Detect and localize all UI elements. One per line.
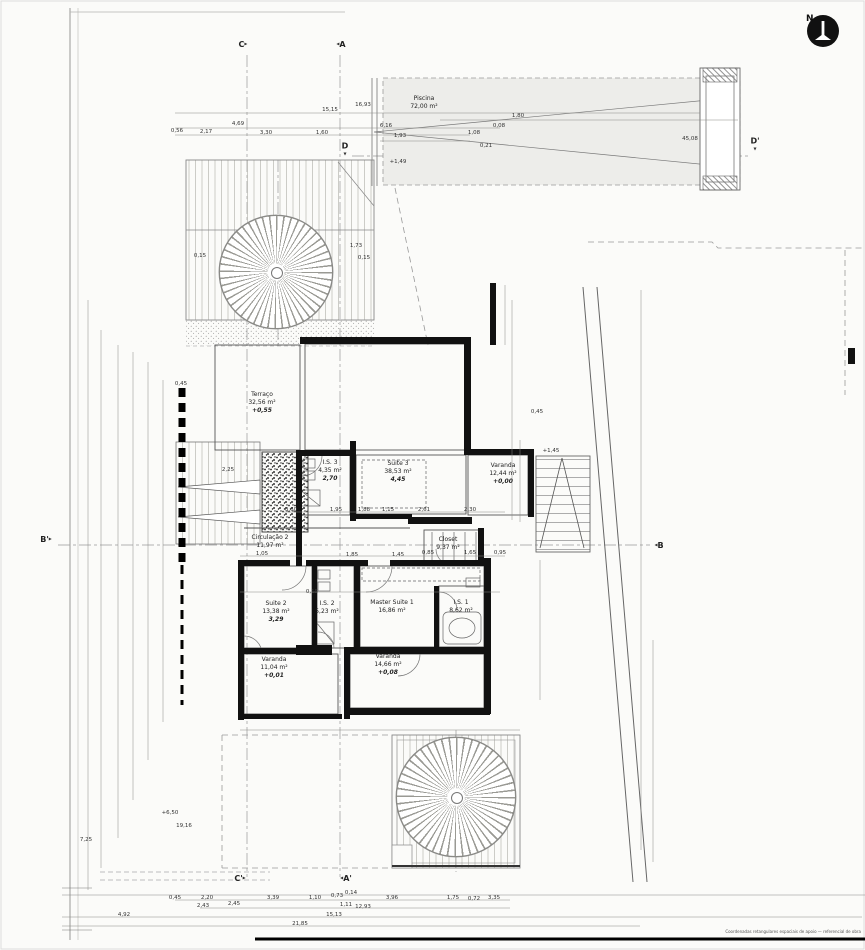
dimension-label: 0,73 bbox=[331, 893, 343, 899]
dimension-label: 0,45 bbox=[175, 381, 187, 387]
dimension-label: 1,85 bbox=[346, 552, 358, 558]
dimension-label: 2,25 bbox=[222, 467, 234, 473]
room-label: Varanda14,66 m²+0,08 bbox=[374, 653, 401, 676]
dimension-label: 1,88 bbox=[358, 507, 370, 513]
plan-labels: Piscina72,00 m²Terraço32,56 m²+0,55Suite… bbox=[0, 0, 865, 950]
section-marker-b-prime: B'▸ bbox=[40, 536, 52, 544]
dimension-label: 1,45 bbox=[392, 552, 404, 558]
room-label: Master Suite 116,86 m² bbox=[370, 599, 413, 615]
room-area: 32,56 m² bbox=[248, 399, 275, 407]
dimension-label: 15,15 bbox=[322, 107, 338, 113]
section-marker-triangle-icon: ▾ bbox=[750, 147, 759, 153]
floor-plan-canvas: Piscina72,00 m²Terraço32,56 m²+0,55Suite… bbox=[0, 0, 865, 950]
room-name: I.S. 1 bbox=[449, 599, 473, 607]
room-level: +0,00 bbox=[489, 478, 516, 486]
room-label: I.S. 18,62 m² bbox=[449, 599, 473, 615]
room-name: Suite 2 bbox=[262, 600, 289, 608]
dimension-label: 3,96 bbox=[386, 895, 398, 901]
room-level: +0,08 bbox=[374, 669, 401, 677]
section-marker-triangle-icon: ▸ bbox=[49, 536, 52, 543]
section-marker-a: ◂A bbox=[336, 41, 345, 49]
room-label: Closet9,37 m² bbox=[436, 536, 460, 552]
dimension-label: 2,17 bbox=[200, 129, 212, 135]
dimension-label: 1,60 bbox=[316, 130, 328, 136]
dimension-label: 0,14 bbox=[345, 890, 357, 896]
dimension-label: 0,45 bbox=[531, 409, 543, 415]
room-label: I.S. 25,23 m² bbox=[315, 600, 339, 616]
dimension-label: 0,60 bbox=[285, 507, 297, 513]
room-area: 16,86 m² bbox=[370, 607, 413, 615]
section-marker-label: D' bbox=[750, 137, 759, 146]
room-area: 4,35 m² bbox=[318, 467, 342, 475]
north-arrow: N bbox=[806, 14, 814, 25]
dimension-label: 16,93 bbox=[355, 102, 371, 108]
dimension-label: 1,95 bbox=[330, 507, 342, 513]
room-area: 5,23 m² bbox=[315, 608, 339, 616]
room-name: Master Suite 1 bbox=[370, 599, 413, 607]
dimension-label: 1,93 bbox=[394, 133, 406, 139]
dimension-label: 2,43 bbox=[197, 903, 209, 909]
room-label: Piscina72,00 m² bbox=[410, 95, 437, 111]
dimension-label: 0,85 bbox=[422, 550, 434, 556]
dimension-label: 19,16 bbox=[176, 823, 192, 829]
room-area: 38,53 m² bbox=[384, 468, 411, 476]
dimension-label: 0,15 bbox=[306, 589, 318, 595]
dimension-label: 0,56 bbox=[171, 128, 183, 134]
dimension-label: 0,15 bbox=[358, 255, 370, 261]
dimension-label: 1,73 bbox=[350, 243, 362, 249]
room-area: 14,66 m² bbox=[374, 661, 401, 669]
room-area: 8,62 m² bbox=[449, 607, 473, 615]
north-badge-icon bbox=[806, 14, 840, 48]
dimension-label: 0,95 bbox=[494, 550, 506, 556]
section-marker-label: B bbox=[657, 541, 663, 550]
room-level: +0,55 bbox=[248, 407, 275, 415]
room-name: I.S. 3 bbox=[318, 459, 342, 467]
dimension-label: 1,10 bbox=[309, 895, 321, 901]
room-label: Varanda11,04 m²+0,01 bbox=[260, 656, 287, 679]
dimension-label: 0,08 bbox=[493, 123, 505, 129]
dimension-label: 21,85 bbox=[292, 921, 308, 927]
room-name: Varanda bbox=[374, 653, 401, 661]
dimension-label: 2,45 bbox=[228, 901, 240, 907]
dimension-label: 45,08 bbox=[682, 136, 698, 142]
room-name: I.S. 2 bbox=[315, 600, 339, 608]
section-marker-d: D▾ bbox=[342, 143, 349, 158]
dimension-label: 0,15 bbox=[194, 253, 206, 259]
section-marker-a-prime: ◂A' bbox=[340, 875, 352, 883]
room-label: Suite 338,53 m²4,45 bbox=[384, 460, 411, 483]
room-area: 12,44 m² bbox=[489, 470, 516, 478]
dimension-label: 3,30 bbox=[260, 130, 272, 136]
room-name: Circulação 2 bbox=[251, 534, 288, 542]
room-level: 3,29 bbox=[262, 616, 289, 624]
dimension-label: 4,92 bbox=[118, 912, 130, 918]
dimension-label: 4,69 bbox=[232, 121, 244, 127]
section-marker-c: C▸ bbox=[239, 41, 248, 49]
dimension-label: 3,35 bbox=[488, 895, 500, 901]
section-marker-triangle-icon: ▾ bbox=[342, 152, 349, 158]
section-marker-c-prime: C'▸ bbox=[234, 875, 245, 883]
dimension-label: 1,75 bbox=[447, 895, 459, 901]
dimension-label: +6,50 bbox=[162, 810, 179, 816]
room-name: Closet bbox=[436, 536, 460, 544]
dimension-label: 7,25 bbox=[80, 837, 92, 843]
dimension-label: +1,49 bbox=[390, 159, 407, 165]
room-level: +0,01 bbox=[260, 672, 287, 680]
section-marker-d-prime: D'▾ bbox=[750, 138, 759, 153]
room-name: Piscina bbox=[410, 95, 437, 103]
section-marker-b: ◂B bbox=[654, 542, 663, 550]
dimension-label: 1,05 bbox=[256, 551, 268, 557]
room-area: 9,37 m² bbox=[436, 544, 460, 552]
section-marker-triangle-icon: ▸ bbox=[243, 875, 246, 882]
dimension-label: 0,72 bbox=[468, 896, 480, 902]
room-name: Varanda bbox=[260, 656, 287, 664]
room-level: 2,70 bbox=[318, 475, 342, 483]
room-label: I.S. 34,35 m²2,70 bbox=[318, 459, 342, 482]
room-area: 11,97 m² bbox=[251, 542, 288, 550]
section-marker-label: A' bbox=[343, 874, 352, 883]
section-marker-triangle-icon: ▸ bbox=[244, 41, 247, 48]
dimension-label: 6,16 bbox=[380, 123, 392, 129]
section-marker-label: A bbox=[339, 40, 345, 49]
room-label: Circulação 211,97 m² bbox=[251, 534, 288, 550]
dimension-label: 2,61 bbox=[418, 507, 430, 513]
room-label: Varanda12,44 m²+0,00 bbox=[489, 462, 516, 485]
section-marker-label: B' bbox=[40, 535, 49, 544]
dimension-label: 1,80 bbox=[512, 113, 524, 119]
dimension-label: 12,93 bbox=[355, 904, 371, 910]
room-label: Terraço32,56 m²+0,55 bbox=[248, 391, 275, 414]
section-marker-label: D bbox=[342, 142, 349, 151]
dimension-label: 1,65 bbox=[464, 550, 476, 556]
room-level: 4,45 bbox=[384, 476, 411, 484]
dimension-label: 2,20 bbox=[201, 895, 213, 901]
dimension-label: 2,30 bbox=[464, 507, 476, 513]
room-area: 13,38 m² bbox=[262, 608, 289, 616]
dimension-label: +1,45 bbox=[543, 448, 560, 454]
dimension-label: 1,11 bbox=[340, 902, 352, 908]
room-name: Suite 3 bbox=[384, 460, 411, 468]
room-area: 11,04 m² bbox=[260, 664, 287, 672]
fine-print: Coordenadas retangulares espaciais de ap… bbox=[686, 929, 861, 934]
dimension-label: 1,15 bbox=[382, 507, 394, 513]
dimension-label: 0,21 bbox=[480, 143, 492, 149]
room-area: 72,00 m² bbox=[410, 103, 437, 111]
room-name: Varanda bbox=[489, 462, 516, 470]
room-label: Suite 213,38 m²3,29 bbox=[262, 600, 289, 623]
dimension-label: 0,45 bbox=[169, 895, 181, 901]
dimension-label: 1,08 bbox=[468, 130, 480, 136]
room-name: Terraço bbox=[248, 391, 275, 399]
dimension-label: 15,13 bbox=[326, 912, 342, 918]
dimension-label: 3,39 bbox=[267, 895, 279, 901]
